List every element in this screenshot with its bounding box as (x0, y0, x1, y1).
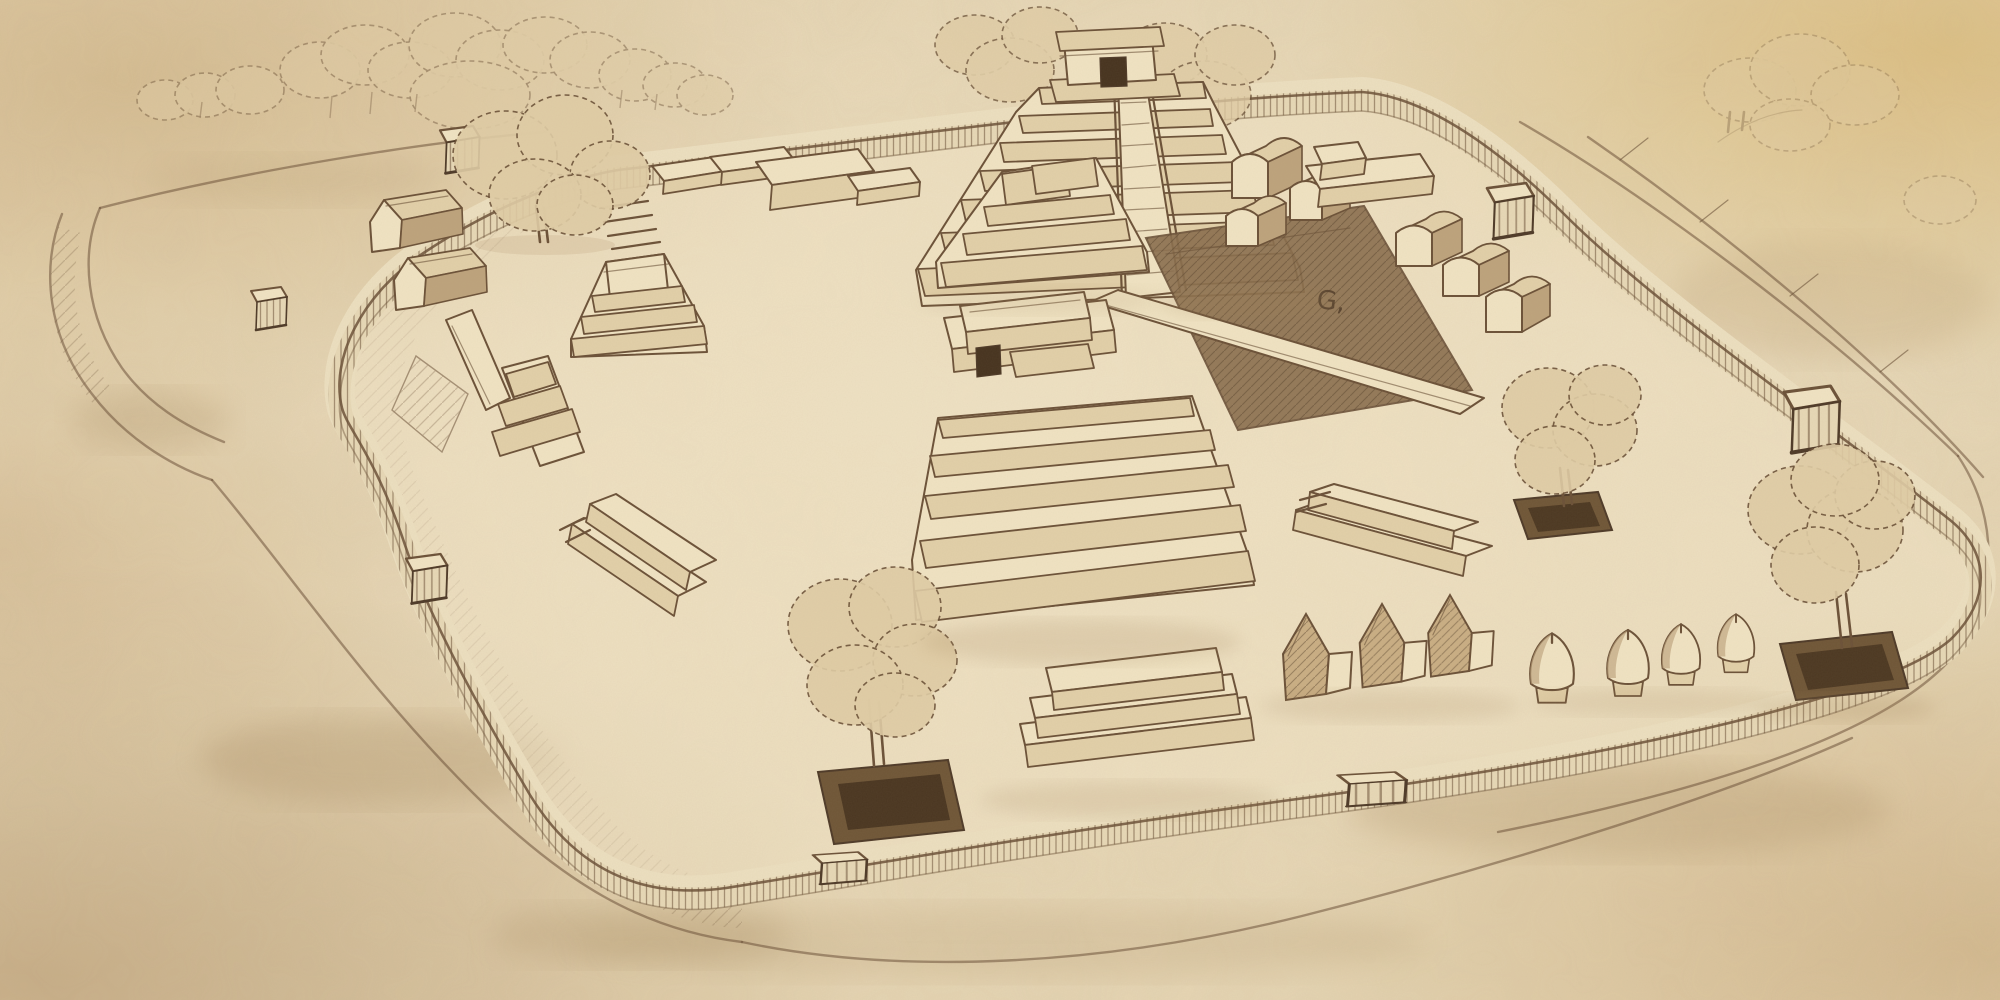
gate-south-east: Gate on south wall (east) (1338, 772, 1406, 806)
gate-east-upper: Gate hut on east wall (upper) (1487, 183, 1534, 239)
central-pyramid: Central stepped pyramid platform (912, 396, 1255, 622)
site-illustration: Aged stained paper Soft pencil ground sh… (0, 0, 2000, 1000)
artwork-canvas: Aged stained paper Soft pencil ground sh… (0, 0, 2000, 1000)
gate-west: Gate hut on west wall (406, 554, 447, 603)
gate-east-lower: Gate hut on east wall (lower) (1784, 386, 1840, 453)
gate-south-west: Gate on south wall (west) (813, 852, 867, 884)
gate-west-outer: Gate hut on west bank (251, 287, 287, 330)
